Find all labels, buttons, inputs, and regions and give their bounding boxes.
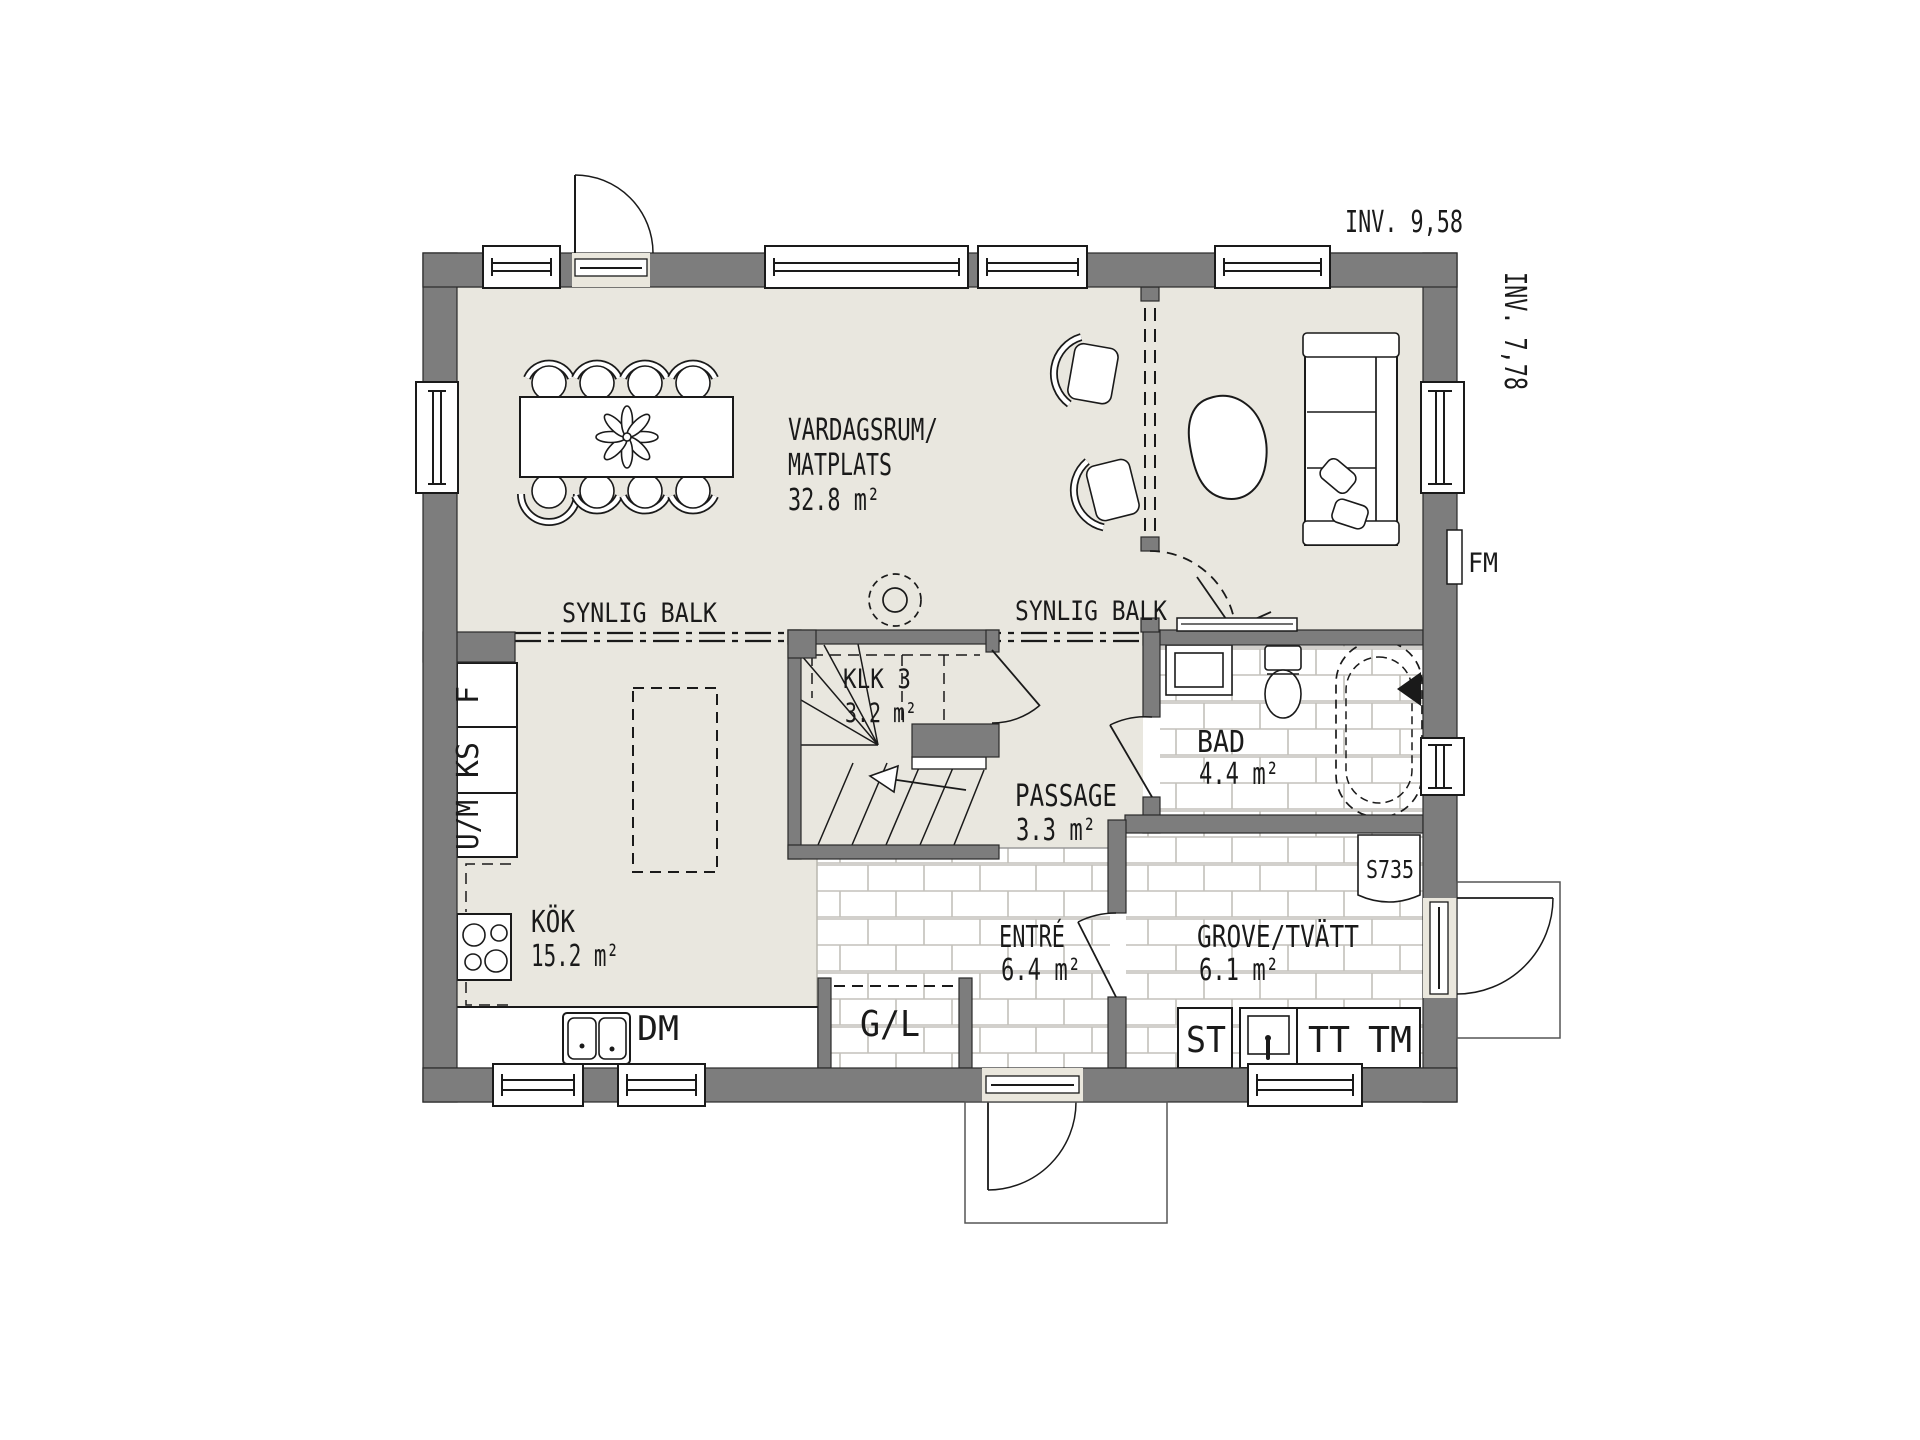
beam-label-left: SYNLIG BALK xyxy=(562,598,718,629)
wardrobe-wall-left xyxy=(818,978,831,1068)
sofa xyxy=(1303,333,1399,545)
floor-plan-page: INV. 9,58 INV. 7,78 VARDAGSRUM/ MATPLATS… xyxy=(0,0,1920,1440)
window-right-1 xyxy=(1421,382,1464,493)
bath-area: 4.4 m² xyxy=(1199,757,1279,792)
stair-landing-wall xyxy=(912,724,999,757)
stair-wall-bottom xyxy=(788,845,999,859)
bath-wall-bottom xyxy=(1125,815,1423,833)
kitchen-label: KÖK xyxy=(531,904,575,940)
window-right-bath xyxy=(1421,738,1464,795)
wardrobe-wall-right xyxy=(959,978,972,1068)
wardrobe-label: G/L xyxy=(860,1004,920,1045)
door-swing xyxy=(575,175,653,253)
floor-plan-drawing: INV. 9,58 INV. 7,78 VARDAGSRUM/ MATPLATS… xyxy=(0,0,1920,1440)
stair-top-tread xyxy=(912,757,986,769)
bath-wall-top xyxy=(1143,630,1423,645)
corner-block-tr xyxy=(1330,253,1457,287)
corner-block-bl xyxy=(423,1068,493,1102)
stair-corner-block xyxy=(788,630,816,658)
threshold-bar xyxy=(1177,618,1297,631)
passage-label: PASSAGE xyxy=(1015,779,1117,814)
entry-area: 6.4 m² xyxy=(1001,953,1081,988)
living-room-area: 32.8 m² xyxy=(788,483,880,518)
dishwasher-label: DM xyxy=(637,1009,679,1049)
kitchen-area: 15.2 m² xyxy=(531,939,619,974)
washer-label: TM xyxy=(1368,1020,1412,1061)
window-bottom-2 xyxy=(618,1064,705,1106)
manifold-box xyxy=(1447,530,1462,584)
living-room-label: VARDAGSRUM/ xyxy=(788,413,938,448)
laundry-step xyxy=(1457,882,1560,1038)
door-swing xyxy=(1457,898,1553,994)
door-swing xyxy=(988,1102,1076,1190)
window-top-4 xyxy=(1215,246,1330,288)
entry-laundry-wall-upper xyxy=(1108,820,1126,913)
inv-width-label: INV. 9,58 xyxy=(1345,205,1463,240)
laundry-area: 6.1 m² xyxy=(1199,953,1279,988)
partition-stub xyxy=(1141,537,1159,551)
cooler-label: KS xyxy=(451,742,486,778)
stove xyxy=(457,914,511,980)
storage-label: ST xyxy=(1186,1020,1226,1061)
window-top-1 xyxy=(483,246,560,288)
laundry-sink xyxy=(1240,1008,1297,1068)
corner-block-br xyxy=(1360,1068,1457,1102)
fridge-label: F xyxy=(451,686,486,704)
wall-left xyxy=(423,253,457,1102)
oven-micro-label: U/M xyxy=(451,800,486,850)
laundry-label: GROVE/TVÄTT xyxy=(1197,919,1359,955)
entry-laundry-wall-lower xyxy=(1108,997,1126,1068)
dryer-label: TT xyxy=(1308,1020,1350,1061)
bath-label: BAD xyxy=(1197,725,1245,760)
inv-height-label: INV. 7,78 xyxy=(1497,272,1532,390)
stair-wall-left xyxy=(788,630,801,859)
water-heater-label: S735 xyxy=(1366,855,1414,884)
living-room-label-2: MATPLATS xyxy=(788,448,892,483)
corner-block-tl xyxy=(423,253,483,287)
window-left-1 xyxy=(416,382,458,493)
stair-closet-area: 3.2 m² xyxy=(845,698,917,729)
bath-wall-left-upper xyxy=(1143,630,1160,717)
table-plant xyxy=(596,406,658,468)
manifold-label: FM xyxy=(1468,548,1498,579)
window-bottom-1 xyxy=(493,1064,583,1106)
window-bottom-laundry xyxy=(1248,1064,1362,1106)
window-top-2 xyxy=(765,246,968,288)
entry-label: ENTRÉ xyxy=(999,919,1065,955)
passage-area: 3.3 m² xyxy=(1016,813,1096,848)
toilet xyxy=(1265,646,1301,718)
stair-wall-top xyxy=(788,630,999,644)
stair-closet-label: KLK 3 xyxy=(843,664,911,695)
partition-stub xyxy=(1141,287,1159,301)
bath-sink xyxy=(1166,645,1232,695)
beam-label-right: SYNLIG BALK xyxy=(1015,596,1168,627)
terrace-door xyxy=(572,175,653,287)
window-top-3 xyxy=(978,246,1087,288)
stair-wall-right-stub xyxy=(986,630,999,652)
entry-porch xyxy=(965,1102,1167,1223)
kitchen-sink xyxy=(563,1013,630,1064)
